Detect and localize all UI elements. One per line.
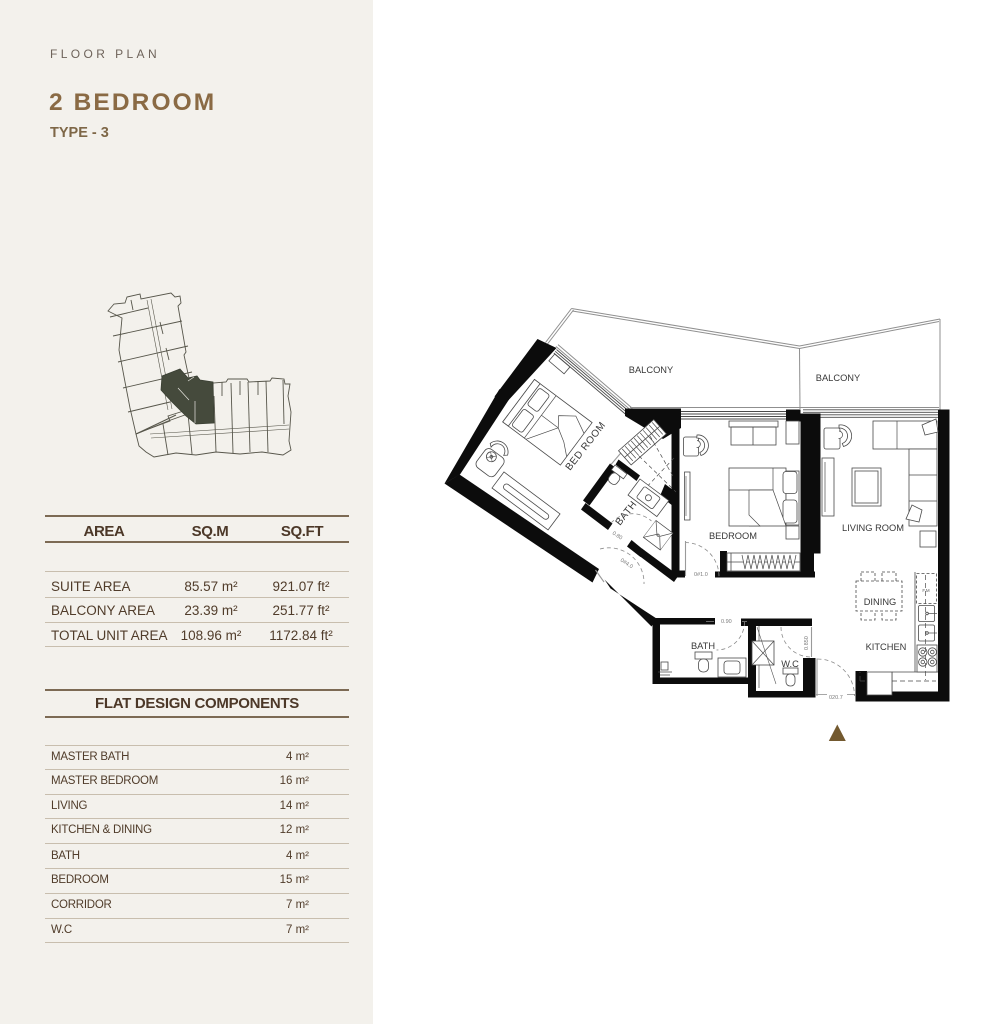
svg-text:BALCONY: BALCONY [816, 373, 860, 383]
svg-text:0.850: 0.850 [804, 636, 810, 650]
svg-text:W.C: W.C [781, 659, 799, 669]
svg-text:0.80: 0.80 [611, 531, 623, 542]
svg-text:DINING: DINING [864, 597, 897, 607]
svg-text:BATH: BATH [614, 499, 640, 528]
svg-text:BATH: BATH [691, 641, 715, 651]
svg-text:0#1.0: 0#1.0 [694, 572, 708, 578]
svg-text:KITCHEN: KITCHEN [866, 642, 907, 652]
svg-text:LIVING ROOM: LIVING ROOM [842, 523, 904, 533]
svg-text:0.90: 0.90 [721, 619, 732, 625]
svg-text:F.M: F.M [922, 588, 930, 593]
svg-text:BALCONY: BALCONY [629, 365, 673, 375]
svg-text:0#4.0: 0#4.0 [619, 558, 634, 571]
svg-text:020.7: 020.7 [829, 695, 843, 701]
svg-text:BEDROOM: BEDROOM [709, 531, 757, 541]
